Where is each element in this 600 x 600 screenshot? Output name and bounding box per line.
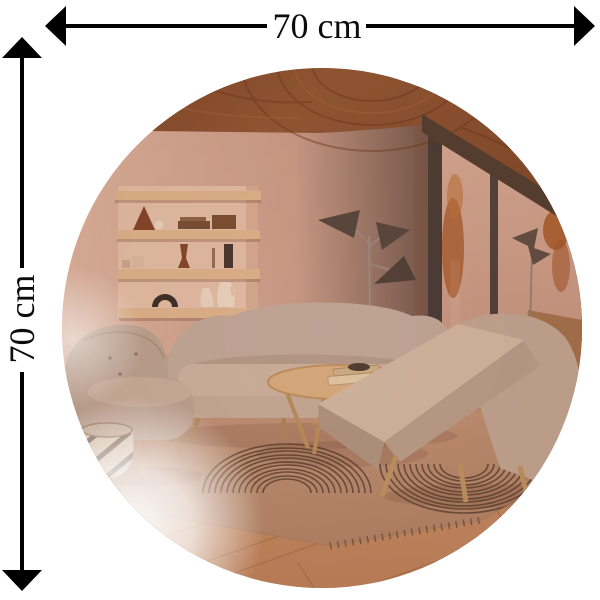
width-dimension-line-left <box>64 24 267 28</box>
arrowhead-down-icon <box>2 570 42 591</box>
outside-foliage <box>447 174 463 218</box>
outside-foliage <box>552 240 570 292</box>
window-frame <box>428 118 442 336</box>
recessed-shelves <box>115 186 261 321</box>
height-label: 70 cm <box>4 275 40 364</box>
product-dimension-figure: 70 cm 70 cm <box>0 0 600 600</box>
width-dimension-line-right <box>366 24 579 28</box>
width-label: 70 cm <box>266 8 368 44</box>
height-dimension-line-top <box>20 56 24 268</box>
mirror-product-photo <box>62 68 582 588</box>
height-dimension-line-bottom <box>20 372 24 571</box>
arrowhead-up-icon <box>2 37 42 58</box>
table-bowl <box>348 363 370 371</box>
reflected-room-scene <box>62 68 582 588</box>
arrowhead-right-icon <box>574 6 595 46</box>
arrowhead-left-icon <box>45 6 66 46</box>
